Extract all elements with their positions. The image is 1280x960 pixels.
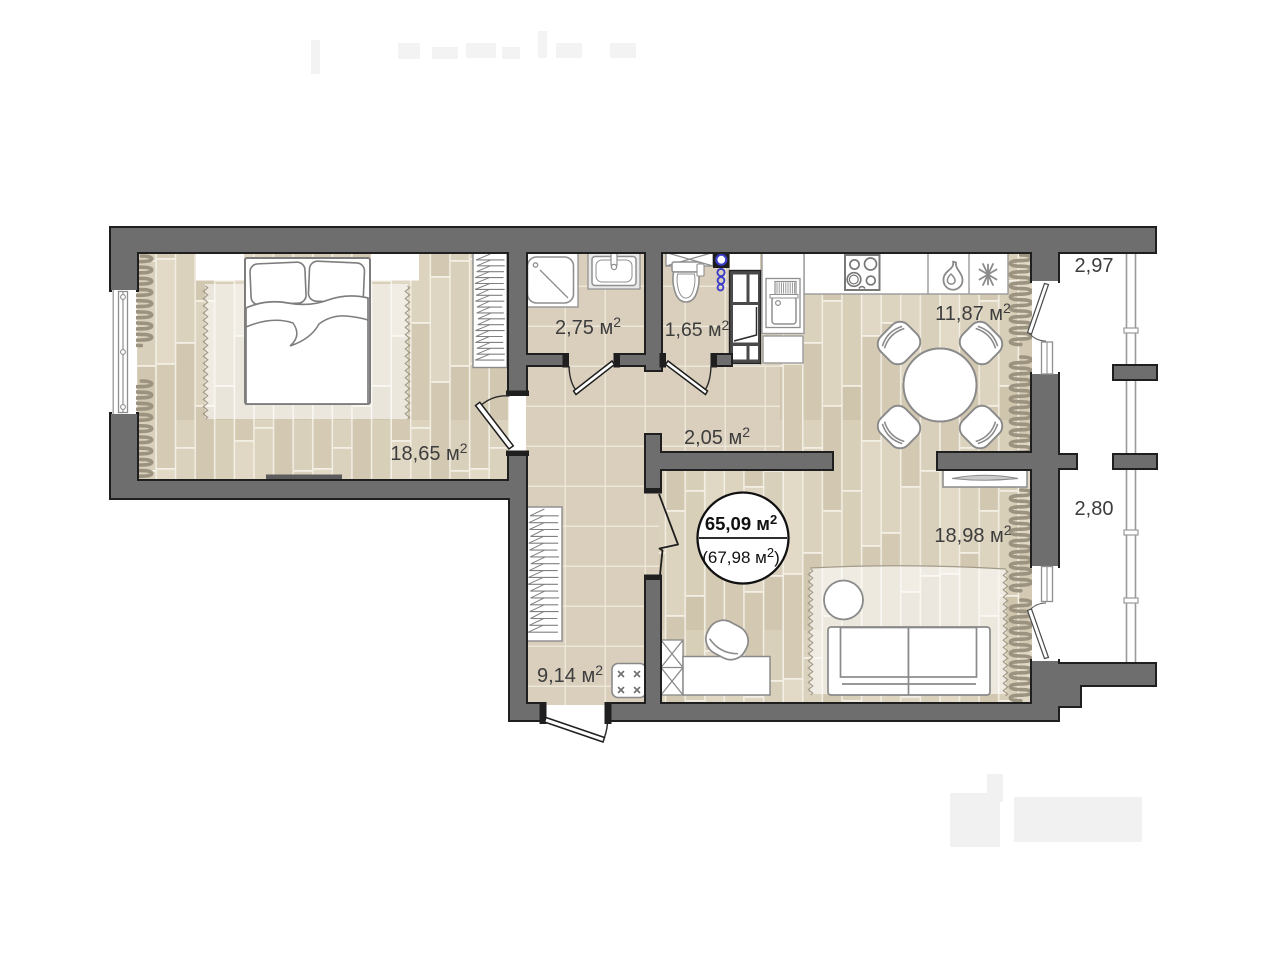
svg-text:2,80: 2,80 [1075, 498, 1114, 520]
svg-text:65,09 м2: 65,09 м2 [705, 512, 777, 534]
svg-text:2,97: 2,97 [1075, 255, 1114, 277]
svg-text:2,75 м2: 2,75 м2 [555, 314, 621, 339]
svg-text:2,05 м2: 2,05 м2 [684, 424, 750, 449]
svg-text:18,65 м2: 18,65 м2 [390, 440, 467, 465]
svg-text:11,87 м2: 11,87 м2 [935, 300, 1011, 325]
svg-text:18,98 м2: 18,98 м2 [934, 522, 1011, 547]
svg-text:1,65 м2: 1,65 м2 [665, 317, 730, 341]
svg-text:9,14 м2: 9,14 м2 [537, 662, 603, 687]
